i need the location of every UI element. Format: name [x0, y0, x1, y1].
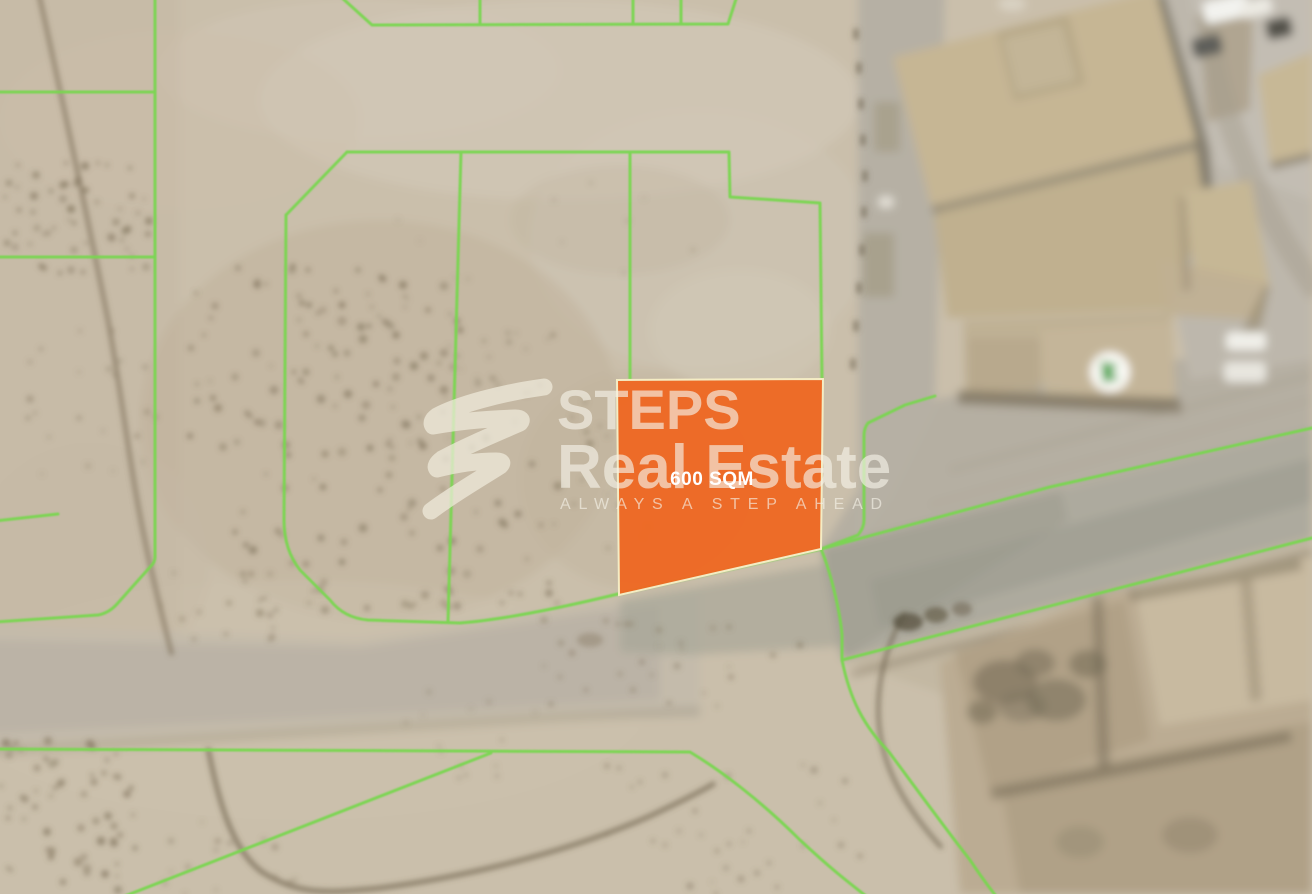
svg-text:STEPS: STEPS — [557, 378, 741, 441]
svg-text:600 SQM: 600 SQM — [670, 469, 754, 490]
svg-text:ALWAYS A STEP AHEAD: ALWAYS A STEP AHEAD — [560, 496, 890, 513]
svg-text:Real Estate: Real Estate — [557, 433, 891, 502]
